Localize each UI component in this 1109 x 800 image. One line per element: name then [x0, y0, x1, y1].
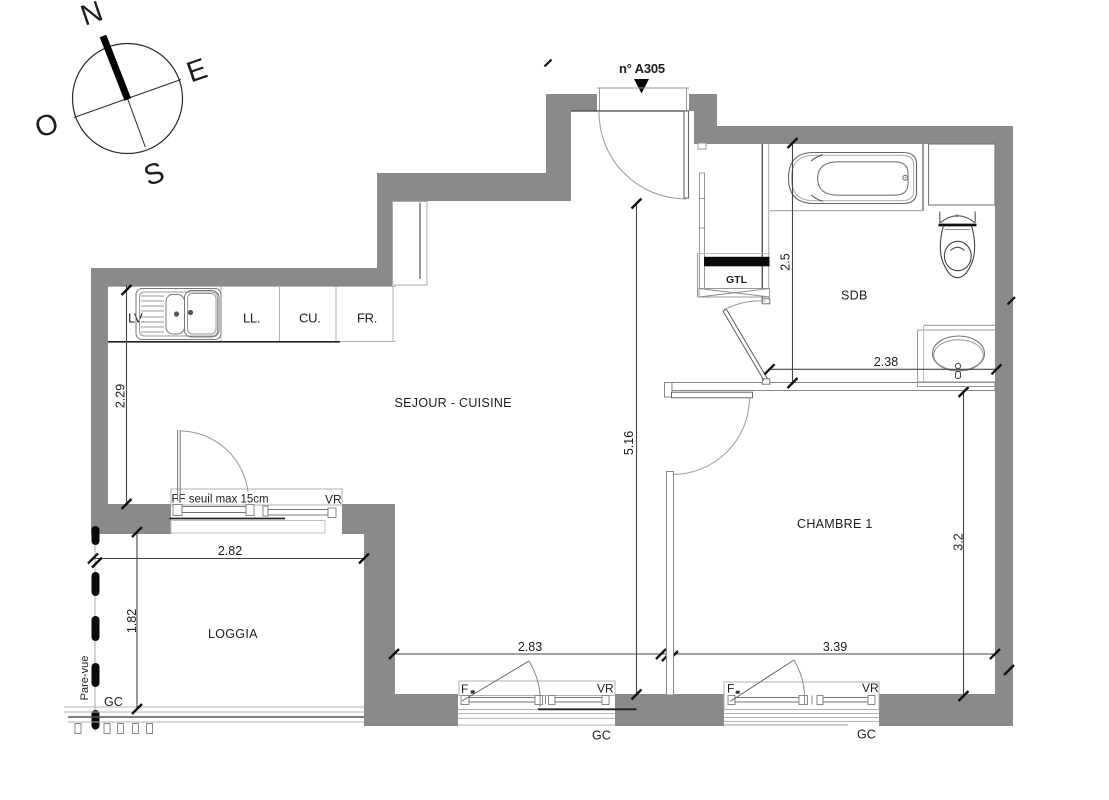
svg-text:GTL: GTL	[726, 274, 748, 286]
svg-text:GC: GC	[857, 727, 876, 741]
svg-text:2.38: 2.38	[874, 355, 898, 369]
svg-text:2.5: 2.5	[779, 253, 793, 270]
svg-text:SEJOUR - CUISINE: SEJOUR - CUISINE	[395, 396, 512, 410]
svg-text:3.39: 3.39	[823, 640, 847, 654]
svg-text:3.2: 3.2	[952, 533, 966, 550]
svg-text:SDB: SDB	[841, 289, 868, 303]
svg-text:n° A305: n° A305	[619, 61, 665, 76]
svg-text:F: F	[461, 682, 468, 696]
svg-text:2.82: 2.82	[218, 544, 242, 558]
svg-text:5.16: 5.16	[622, 431, 636, 455]
svg-text:VR: VR	[325, 493, 342, 507]
svg-text:CHAMBRE 1: CHAMBRE 1	[797, 517, 873, 531]
svg-text:LOGGIA: LOGGIA	[208, 627, 258, 641]
svg-text:VR: VR	[597, 682, 614, 696]
svg-text:FF seuil max 15cm: FF seuil max 15cm	[172, 494, 269, 506]
svg-text:LL.: LL.	[243, 311, 260, 326]
svg-text:F: F	[727, 682, 734, 696]
svg-text:2.83: 2.83	[518, 640, 542, 654]
svg-text:Pare-vue: Pare-vue	[79, 656, 91, 701]
svg-text:GC: GC	[592, 729, 611, 743]
svg-text:VR: VR	[862, 681, 879, 695]
svg-text:FR.: FR.	[357, 311, 377, 326]
svg-text:2.29: 2.29	[114, 384, 128, 408]
svg-text:GC: GC	[104, 695, 123, 709]
svg-text:CU.: CU.	[299, 311, 321, 326]
svg-text:1.82: 1.82	[125, 609, 139, 633]
